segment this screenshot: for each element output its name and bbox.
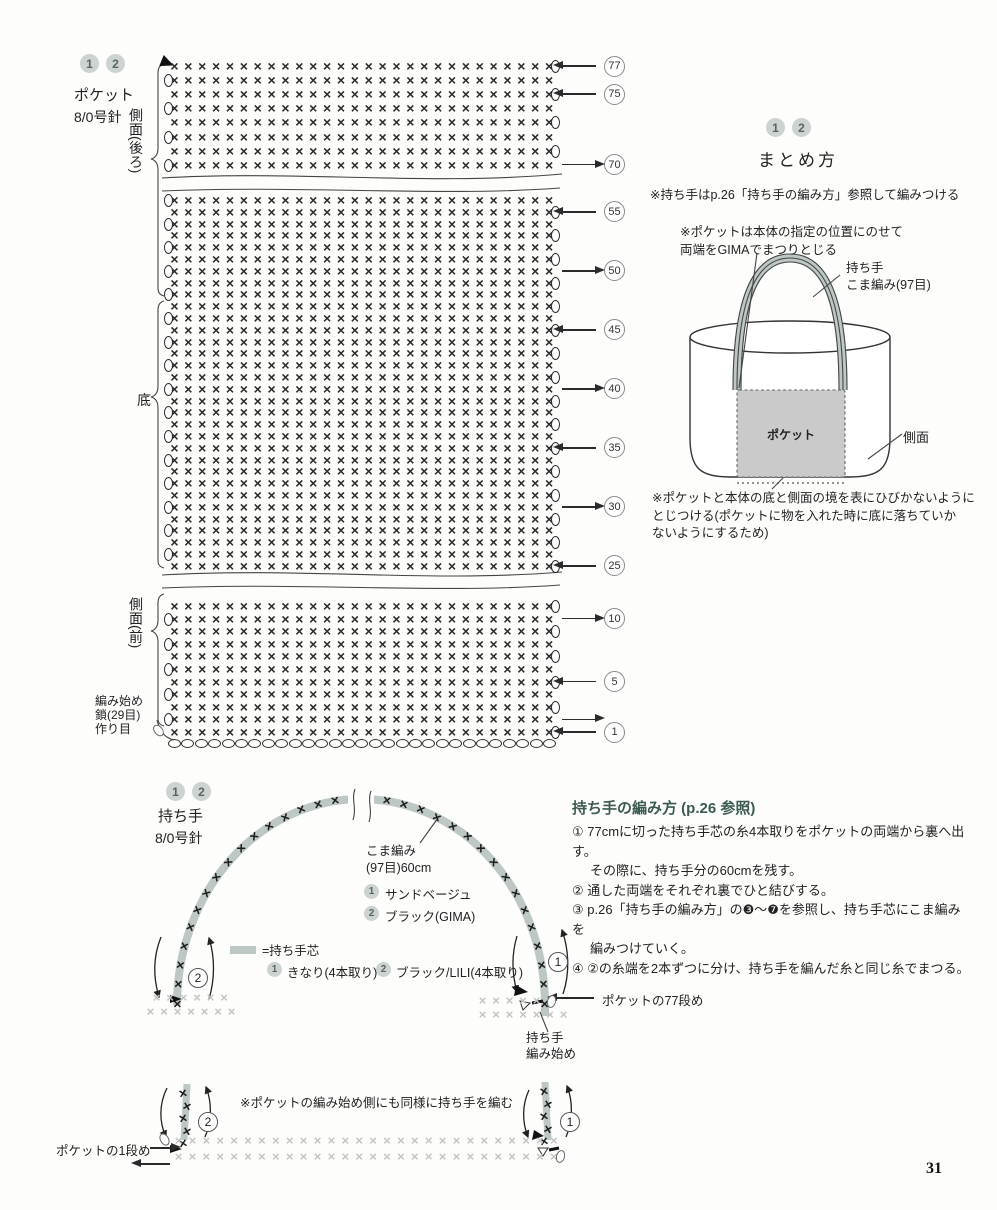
sc-stitch: ×: [432, 116, 445, 129]
sc-stitch: ×: [501, 60, 514, 73]
crochet-row-76: ××××××××××××××××××××××××××××: [168, 74, 556, 87]
crochet-row-25: ××××××××××××××××××××××××××××: [168, 560, 556, 573]
sc-stitch: ×: [293, 159, 306, 172]
row-direction-arrow-right: [562, 506, 596, 508]
sc-stitch: ×: [529, 60, 542, 73]
sc-stitch: ×: [168, 726, 181, 739]
sc-stitch: ×: [321, 116, 334, 129]
pocket-row-stitch: ×: [436, 1134, 449, 1147]
handle-sc-stitch: ×: [484, 852, 504, 872]
chain-stitch: [289, 739, 302, 748]
sc-stitch: ×: [182, 726, 195, 739]
sc-stitch: ×: [307, 88, 320, 101]
assembly-title: まとめ方: [758, 146, 838, 171]
sc-stitch: ×: [307, 74, 320, 87]
sc-stitch: ×: [182, 74, 195, 87]
sc-stitch: ×: [515, 145, 528, 158]
sc-stitch: ×: [307, 131, 320, 144]
sc-stitch: ×: [432, 726, 445, 739]
break-line: [162, 174, 562, 179]
side-label-leader: [868, 434, 902, 459]
sc-stitch: ×: [404, 74, 417, 87]
sc-stitch: ×: [307, 116, 320, 129]
sc-stitch: ×: [265, 102, 278, 115]
sc-stitch: ×: [293, 74, 306, 87]
sc-stitch: ×: [321, 145, 334, 158]
sc-stitch: ×: [487, 560, 500, 573]
mini-circled-1: 1: [560, 1112, 580, 1132]
legend1-label: きなり(4本取り): [287, 962, 377, 981]
sc-stitch: ×: [251, 159, 264, 172]
sc-stitch: ×: [237, 131, 250, 144]
sc-stitch: ×: [293, 88, 306, 101]
crochet-row-70: ××××××××××××××××××××××××××××: [168, 159, 556, 172]
sc-stitch: ×: [487, 116, 500, 129]
pocket-row-stitch: ×: [394, 1150, 407, 1163]
sc-stitch: ×: [376, 131, 389, 144]
pocket-row-stitch: ×: [422, 1150, 435, 1163]
pocket-row-stitch: ×: [476, 994, 489, 1007]
pocket-row-stitch: ×: [158, 1005, 171, 1018]
label-front-side: 側面(前): [126, 597, 146, 648]
sc-stitch: ×: [196, 102, 209, 115]
bag-side-label: 側面: [903, 427, 929, 446]
sc-stitch: ×: [390, 102, 403, 115]
brace-back-side: [151, 64, 164, 296]
arch-break: [353, 789, 355, 820]
sc-stitch: ×: [362, 560, 375, 573]
brace-bottom: [151, 301, 164, 568]
sc-stitch: ×: [210, 560, 223, 573]
pocket-row-stitch: ×: [381, 1150, 394, 1163]
sc-stitch: ×: [168, 116, 181, 129]
row-marker-77: 77: [562, 58, 625, 74]
sc-stitch: ×: [432, 145, 445, 158]
instruction-step-line-1: ① 77cmに切った持ち手芯の糸4本取りをポケットの両端から裏へ出す。: [572, 822, 972, 861]
brace-front-side: [151, 594, 164, 726]
handle-sc-stitch: ×: [231, 838, 251, 858]
sc-stitch: ×: [335, 102, 348, 115]
sc-stitch: ×: [515, 159, 528, 172]
mini-circled-2: 2: [198, 1112, 218, 1132]
pocket-row-stitch: ×: [269, 1150, 282, 1163]
sc-stitch: ×: [459, 159, 472, 172]
handle-sc-stitch: ×: [197, 883, 216, 902]
row-marker-50: 50: [562, 263, 625, 279]
chain-loop: [157, 1132, 171, 1148]
sc-stitch: ×: [390, 131, 403, 144]
sc-stitch: ×: [432, 60, 445, 73]
chain-stitch: [355, 739, 368, 748]
sc-stitch: ×: [543, 102, 556, 115]
sc-stitch: ×: [293, 102, 306, 115]
sc-stitch: ×: [404, 88, 417, 101]
sc-stitch: ×: [459, 116, 472, 129]
legend2-label: ブラック/LILI(4本取り): [396, 962, 523, 981]
sc-stitch: ×: [390, 159, 403, 172]
pocket-row-stitch: ×: [476, 1008, 489, 1021]
pocket-row-stitch: ×: [325, 1134, 338, 1147]
pocket-row-stitch: ×: [517, 994, 530, 1007]
circled-1: 1: [548, 952, 568, 972]
sc-stitch: ×: [390, 145, 403, 158]
pocket-row-stitch: ×: [269, 1134, 282, 1147]
pocket-row-stitch: ×: [533, 1134, 546, 1147]
handle-sc-stitch: ×: [188, 900, 207, 919]
sc-stitch: ×: [210, 145, 223, 158]
pocket-row-stitch: ×: [200, 1134, 213, 1147]
sc-stitch: ×: [348, 60, 361, 73]
pocket-row-stitch: ×: [191, 991, 204, 1004]
pocket-title: ポケット: [74, 84, 134, 105]
sc-stitch: ×: [251, 102, 264, 115]
sc-stitch: ×: [210, 159, 223, 172]
sc-stitch: ×: [473, 145, 486, 158]
pocket-row-stitch: ×: [242, 1134, 255, 1147]
pocket-row-stitch: ×: [255, 1134, 268, 1147]
sc-stitch: ×: [237, 726, 250, 739]
sc-stitch: ×: [376, 159, 389, 172]
sc-stitch: ×: [335, 560, 348, 573]
sc-stitch: ×: [376, 88, 389, 101]
pocket-row-stitch: ×: [353, 1150, 366, 1163]
sc-stitch: ×: [237, 60, 250, 73]
sc-stitch: ×: [293, 560, 306, 573]
sc-stitch: ×: [515, 60, 528, 73]
sc-stitch: ×: [265, 116, 278, 129]
sc-stitch: ×: [168, 145, 181, 158]
row77-arrow: [556, 997, 594, 999]
assembly-note-bottom: ※ポケットと本体の底と側面の境を表にひびかないように とじつける(ポケットに物を…: [652, 490, 975, 543]
row-marker-55: 55: [562, 204, 625, 220]
sc-stitch: ×: [404, 102, 417, 115]
pocket-row-stitch: ×: [450, 1150, 463, 1163]
pocket-row-stitch: ×: [490, 994, 503, 1007]
row-marker-30: 30: [562, 499, 625, 515]
pocket-row-stitch: ×: [557, 1008, 570, 1021]
color-badge-2: 2: [192, 782, 211, 801]
row-number-50: 50: [604, 260, 625, 281]
sc-stitch: ×: [279, 131, 292, 144]
row-marker-40: 40: [562, 381, 625, 397]
row-direction-arrow-left: [562, 731, 596, 733]
pocket-row-stitch: ×: [478, 1134, 491, 1147]
pocket-row-stitch: ×: [408, 1150, 421, 1163]
pocket-row-stitch: ×: [492, 1150, 505, 1163]
sc-stitch: ×: [279, 102, 292, 115]
pocket-row-stitch: ×: [144, 1005, 157, 1018]
sc-stitch: ×: [487, 726, 500, 739]
sc-stitch: ×: [418, 74, 431, 87]
sc-stitch: ×: [418, 560, 431, 573]
sc-stitch: ×: [459, 60, 472, 73]
sc-stitch: ×: [251, 726, 264, 739]
sc-stitch: ×: [251, 116, 264, 129]
handle-label-leader: [813, 275, 840, 297]
instruction-step-line-5: 編みつけていく。: [572, 939, 972, 959]
sc-stitch: ×: [265, 726, 278, 739]
handle-sc-stitch: ×: [218, 852, 238, 872]
pocket-row-stitch: ×: [225, 1005, 238, 1018]
pocket-row-stitch: ×: [214, 1134, 227, 1147]
sc-stitch: ×: [321, 726, 334, 739]
bag-rim: [690, 321, 890, 353]
sc-stitch: ×: [501, 88, 514, 101]
sc-stitch: ×: [529, 726, 542, 739]
handle-sc-stitch: ×: [523, 918, 541, 936]
pocket-row-stitch: ×: [367, 1150, 380, 1163]
pocket-row-stitch: ×: [381, 1134, 394, 1147]
sc-stitch: ×: [473, 726, 486, 739]
sc-stitch: ×: [335, 145, 348, 158]
color-badge-2: 2: [792, 118, 811, 137]
sc-stitch: ×: [418, 145, 431, 158]
row1-arrow-right: [150, 1147, 172, 1149]
pocket-row-stitch: ×: [394, 1134, 407, 1147]
row-marker-35: 35: [562, 440, 625, 456]
chain-stitch: [516, 739, 529, 748]
pocket-row-stitch: ×: [520, 1134, 533, 1147]
sc-stitch: ×: [279, 88, 292, 101]
pocket-row-stitch: ×: [198, 1005, 211, 1018]
sc-stitch: ×: [501, 116, 514, 129]
bottom-note-leader: [772, 478, 783, 489]
sc-stitch: ×: [390, 88, 403, 101]
chain-stitch: [235, 739, 248, 748]
handle-sc-stitch: ×: [259, 816, 278, 835]
chain-stitch: [530, 739, 543, 748]
handle-core-swatch: [230, 946, 256, 954]
chain-stitch: [489, 739, 502, 748]
mini-note: ※ポケットの編み始め側にも同様に持ち手を編む: [240, 1092, 513, 1111]
row-marker-10: 10: [562, 611, 625, 627]
sc-stitch: ×: [321, 131, 334, 144]
row-direction-arrow-right: [562, 164, 596, 166]
sc-stitch: ×: [487, 88, 500, 101]
sc-stitch: ×: [237, 116, 250, 129]
sc-stitch: ×: [446, 102, 459, 115]
row-number-55: 55: [604, 201, 625, 222]
instruction-step-line-3: ② 通した両端をそれぞれ裏でひと結びする。: [572, 881, 972, 901]
sc-stitch: ×: [348, 145, 361, 158]
sc-stitch: ×: [418, 60, 431, 73]
sc-stitch: ×: [446, 60, 459, 73]
row-number-5: 5: [604, 671, 625, 692]
row-direction-arrow-right: [562, 719, 596, 721]
sc-stitch: ×: [210, 726, 223, 739]
sc-stitch: ×: [307, 145, 320, 158]
sc-stitch: ×: [376, 145, 389, 158]
sc-stitch: ×: [515, 88, 528, 101]
row-marker-70: 70: [562, 157, 625, 173]
chain-stitch: [315, 739, 328, 748]
chain-stitch: [168, 739, 181, 748]
sc-stitch: ×: [224, 560, 237, 573]
sc-stitch: ×: [224, 74, 237, 87]
handle-sc-stitch: ×: [396, 795, 413, 812]
color1-label: サンドベージュ: [385, 884, 471, 903]
sc-stitch: ×: [251, 560, 264, 573]
sc-stitch: ×: [265, 60, 278, 73]
sc-stitch: ×: [501, 145, 514, 158]
sc-stitch: ×: [459, 726, 472, 739]
row-number-30: 30: [604, 496, 625, 517]
sc-stitch: ×: [279, 159, 292, 172]
sc-stitch: ×: [376, 74, 389, 87]
sc-stitch: ×: [265, 159, 278, 172]
assembly-note-pocket: ※ポケットは本体の指定の位置にのせて 両端をGIMAでまつりとじる: [680, 224, 903, 259]
handle-sc-stitch: ×: [443, 816, 462, 835]
pocket-row-stitch: ×: [200, 1150, 213, 1163]
sc-stitch: ×: [446, 726, 459, 739]
pocket-row-stitch: ×: [150, 991, 163, 1004]
sc-stitch: ×: [459, 102, 472, 115]
sc-stitch: ×: [418, 131, 431, 144]
bag-body: [690, 337, 890, 477]
sc-stitch: ×: [473, 88, 486, 101]
circled-2: 2: [188, 968, 208, 988]
sc-stitch: ×: [279, 145, 292, 158]
bag-handle-label: 持ち手 こま編み(97目): [846, 260, 931, 294]
sc-stitch: ×: [473, 159, 486, 172]
sc-stitch: ×: [418, 102, 431, 115]
pocket-row-stitch: ×: [478, 1150, 491, 1163]
sc-stitch: ×: [515, 131, 528, 144]
sc-stitch: ×: [293, 726, 306, 739]
sc-stitch: ×: [237, 560, 250, 573]
sc-stitch: ×: [376, 102, 389, 115]
sc-stitch: ×: [529, 159, 542, 172]
row-direction-arrow-left: [562, 65, 596, 67]
pocket-row-stitch: ×: [408, 1134, 421, 1147]
turning-chain: [164, 159, 173, 172]
sc-stitch: ×: [376, 726, 389, 739]
sc-stitch: ×: [543, 159, 556, 172]
sc-stitch: ×: [279, 74, 292, 87]
label-bottom: 底: [137, 390, 151, 410]
row-marker-25: 25: [562, 558, 625, 574]
handle-sc-stitch: ×: [534, 957, 550, 973]
instructions-title: 持ち手の編み方 (p.26 参照): [572, 797, 755, 818]
row1-arrow-left: [140, 1163, 170, 1165]
pocket-row-stitch: ×: [186, 1150, 199, 1163]
chain-stitch: [436, 739, 449, 748]
pocket-row-stitch: ×: [506, 1134, 519, 1147]
sc-stitch: ×: [210, 102, 223, 115]
sc-stitch: ×: [404, 116, 417, 129]
sc-stitch: ×: [265, 74, 278, 87]
color2-badge: 2: [364, 906, 379, 921]
row-marker-75: 75: [562, 86, 625, 102]
sc-stitch: ×: [362, 159, 375, 172]
handle-sc-stitch: ×: [496, 867, 516, 887]
sc-stitch: ×: [501, 131, 514, 144]
sc-stitch: ×: [335, 131, 348, 144]
sc-stitch: ×: [348, 102, 361, 115]
row-direction-arrow-left: [562, 447, 596, 449]
turning-chain: [164, 131, 173, 144]
sc-stitch: ×: [487, 159, 500, 172]
row-marker-1: 1: [562, 724, 625, 740]
sc-stitch: ×: [529, 74, 542, 87]
row-direction-arrow-right: [562, 270, 596, 272]
sc-stitch: ×: [432, 560, 445, 573]
sc-stitch: ×: [251, 131, 264, 144]
handle-sc-stitch: ×: [244, 826, 264, 846]
crochet-row-77: ××××××××××××××××××××××××××××: [168, 60, 556, 73]
pocket-row-stitch: ×: [506, 1150, 519, 1163]
handle-sc-stitch: ×: [292, 800, 310, 818]
turning-chain: [551, 145, 560, 158]
handle-sc-stitch: ×: [176, 937, 193, 954]
page-number: 31: [926, 1160, 942, 1178]
chain-stitch: [262, 739, 275, 748]
sc-stitch: ×: [348, 159, 361, 172]
sc-stitch: ×: [168, 560, 181, 573]
sc-stitch: ×: [515, 560, 528, 573]
pocket-row-stitch: ×: [185, 1005, 198, 1018]
pocket-row-stitch: ×: [503, 1008, 516, 1021]
chain-stitch: [181, 739, 194, 748]
sc-stitch: ×: [390, 60, 403, 73]
sc-stitch: ×: [404, 159, 417, 172]
sc-stitch: ×: [321, 102, 334, 115]
sc-stitch: ×: [515, 116, 528, 129]
sc-stitch: ×: [224, 116, 237, 129]
pocket-row-stitch: ×: [544, 1008, 557, 1021]
sc-stitch: ×: [529, 88, 542, 101]
sc-stitch: ×: [182, 60, 195, 73]
pocket-row-stitch: ×: [547, 1134, 560, 1147]
sc-stitch: ×: [362, 60, 375, 73]
sc-stitch: ×: [473, 131, 486, 144]
sc-stitch: ×: [362, 131, 375, 144]
handle-sc-stitch: ×: [172, 957, 188, 973]
pocket-row-stitch: ×: [214, 1150, 227, 1163]
sc-stitch: ×: [473, 560, 486, 573]
row-number-25: 25: [604, 555, 625, 576]
sc-stitch: ×: [515, 74, 528, 87]
legend1-badge: 1: [267, 962, 282, 977]
sc-stitch: ×: [529, 116, 542, 129]
chain-stitch: [409, 739, 422, 748]
sc-stitch: ×: [279, 726, 292, 739]
pocket-row-stitch: ×: [517, 1008, 530, 1021]
handle-sc-stitch: ×: [412, 800, 430, 818]
turning-chain: [164, 74, 173, 87]
sc-stitch: ×: [404, 60, 417, 73]
sc-stitch: ×: [543, 131, 556, 144]
sc-stitch: ×: [390, 560, 403, 573]
pocket-row-stitch: ×: [530, 994, 543, 1007]
chain-stitch: [422, 739, 435, 748]
arch-arrow-down: [155, 937, 161, 997]
sc-stitch: ×: [210, 88, 223, 101]
row-number-45: 45: [604, 319, 625, 340]
sc-stitch: ×: [418, 88, 431, 101]
sc-stitch: ×: [459, 131, 472, 144]
sc-stitch: ×: [265, 145, 278, 158]
handle-sc-stitch: ×: [275, 807, 294, 826]
sc-stitch: ×: [196, 60, 209, 73]
break-line: [162, 585, 560, 588]
row-direction-arrow-left: [562, 681, 596, 683]
row-number-75: 75: [604, 84, 625, 105]
sc-stitch: ×: [168, 88, 181, 101]
assembly-note-handle: ※持ち手はp.26「持ち手の編み方」参照して編みつける: [650, 184, 959, 203]
sc-stitch: ×: [265, 560, 278, 573]
color-badge-2: 2: [106, 54, 125, 73]
